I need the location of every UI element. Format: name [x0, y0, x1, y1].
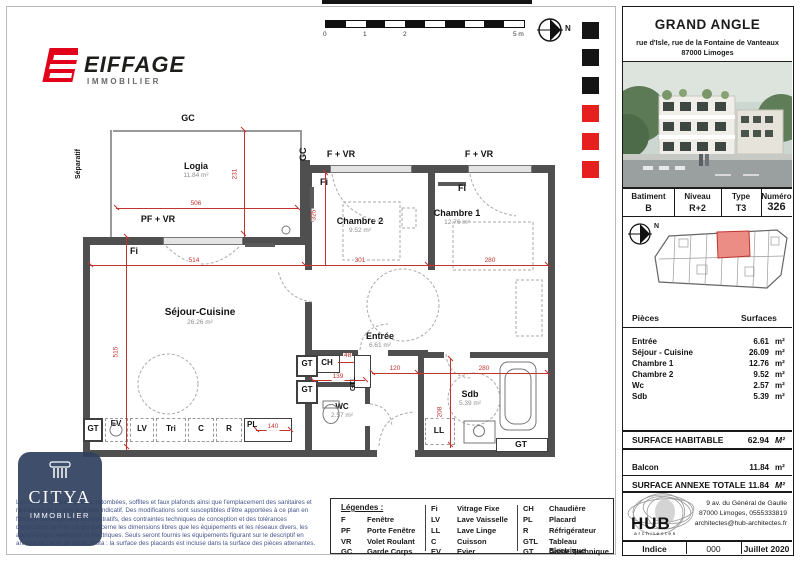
scale-seg [405, 21, 425, 27]
surface-row-label: Entrée [632, 337, 657, 346]
dim-280-top: 280 [484, 258, 497, 265]
dim-140: 140 [267, 424, 280, 431]
surface-row-label: Chambre 1 [632, 359, 673, 368]
hub-address-3: architectes@hub-architectes.fr [683, 520, 787, 527]
legend-title: Légendes : [341, 503, 383, 512]
hub-address-1: 9 av. du Général de Gaulle [683, 500, 787, 507]
unit-header-batiment: Batiment [623, 192, 674, 201]
dim-line [116, 208, 298, 209]
marker-square-black [582, 49, 599, 66]
legend-abbr: LV [431, 515, 440, 524]
legend-label: Lave Linge [457, 526, 496, 535]
legend-abbr: C [431, 537, 436, 546]
legend-abbr: F [341, 515, 346, 524]
surface-habitable-value: 62.94 [735, 435, 769, 445]
legend-divider [425, 505, 426, 551]
scale-seg [385, 21, 405, 27]
compass-icon [536, 15, 568, 47]
surface-row-label: Wc [632, 381, 644, 390]
brand-name: EIFFAGE [84, 52, 185, 78]
table-border [623, 448, 792, 450]
marker-square-black [582, 22, 599, 39]
legend-abbr: R [523, 526, 528, 535]
dim-280-sdb: 280 [478, 366, 491, 373]
hub-sub: architectes [634, 532, 677, 537]
dim-515: 515 [114, 346, 121, 359]
unit-value-niveau: R+2 [674, 203, 721, 213]
dim-325: 325 [312, 209, 319, 222]
scale-seg [425, 21, 445, 27]
indice-value: 000 [686, 544, 741, 554]
balcon-value: 11.84 [735, 463, 769, 472]
legend-abbr: CH [523, 504, 534, 513]
scale-tick-1: 1 [363, 31, 367, 38]
dim-506: 506 [190, 201, 203, 208]
surface-row-unit: m² [775, 381, 785, 390]
plan-linework [58, 112, 560, 474]
hub-address-2: 87000 Limoges, 0555333819 [683, 510, 787, 517]
legend-abbr: VR [341, 537, 351, 546]
marker-square-black [582, 77, 599, 94]
indice-label: Indice [623, 544, 686, 554]
scale-seg [484, 21, 504, 27]
project-address-2: 87000 Limoges [623, 48, 792, 57]
legend-label: Garde Corps [367, 547, 412, 556]
brand-division: IMMOBILIER [87, 77, 161, 86]
unit-header-numero: Numéro [761, 192, 792, 201]
table-border [623, 430, 792, 432]
legend-label: Réfrigérateur [549, 526, 596, 535]
surface-annexe-unit: M² [775, 480, 785, 490]
unit-header-type: Type [721, 192, 761, 201]
key-plan: N [623, 217, 792, 303]
dim-301: 301 [354, 258, 367, 265]
marker-square-red [582, 161, 599, 178]
north-compass: N [536, 15, 568, 52]
scale-seg [504, 21, 524, 27]
marker-square-red [582, 105, 599, 122]
eiffage-icon [34, 46, 78, 88]
dim-line [244, 130, 245, 237]
project-address-1: rue d'Isle, rue de la Fontaine de Vantea… [623, 38, 792, 47]
dim-line [126, 237, 127, 450]
dim-line [90, 265, 548, 266]
dim-139: 139 [332, 374, 345, 381]
surface-row-value: 9.52 [735, 370, 769, 379]
column-icon [47, 460, 73, 480]
marker-square-red [582, 133, 599, 150]
dim-line [372, 373, 548, 374]
citya-name: CITYA [18, 487, 102, 508]
surface-row-label: Sdb [632, 392, 647, 401]
surface-row-unit: m² [775, 370, 785, 379]
dim-514: 514 [188, 258, 201, 265]
surface-row-value: 2.57 [735, 381, 769, 390]
legend-label: Evier [457, 547, 475, 556]
top-rule [322, 0, 532, 4]
scale-tick-0: 0 [323, 31, 327, 38]
key-plan-sketch [651, 223, 789, 301]
table-border [623, 188, 792, 189]
surface-annexe-label: SURFACE ANNEXE TOTALE [632, 480, 746, 490]
unit-value-batiment: B [623, 203, 674, 213]
table-border [623, 327, 792, 328]
surfaces-head-surfaces: Surfaces [741, 313, 777, 323]
legend-label: Fenêtre [367, 515, 394, 524]
surface-habitable-label: SURFACE HABITABLE [632, 435, 723, 445]
legend-abbr: EV [431, 547, 441, 556]
legend-label: Cuisson [457, 537, 487, 546]
balcon-label: Balcon [632, 463, 659, 472]
surface-row-value: 5.39 [735, 392, 769, 401]
legend-label: Volet Roulant [367, 537, 415, 546]
floor-plan: GC Séparatif Logia 11.84 m² 506 PF + VR … [58, 112, 560, 474]
surface-row-value: 26.09 [735, 348, 769, 357]
dim-231: 231 [233, 168, 240, 181]
surface-row-unit: m² [775, 348, 785, 357]
dim-48: 48 [343, 353, 352, 360]
legend-label: Gaine Technique [549, 547, 609, 556]
scale-seg [346, 21, 366, 27]
north-letter: N [565, 24, 571, 33]
citya-logo: CITYA IMMOBILIER [18, 452, 102, 546]
citya-sub: IMMOBILIER [18, 511, 102, 520]
dim-line [450, 359, 451, 448]
surface-row-unit: m² [775, 359, 785, 368]
unit-value-numero: 326 [761, 201, 792, 213]
scale-seg [465, 21, 485, 27]
legend-abbr: PL [523, 515, 533, 524]
project-title: GRAND ANGLE [623, 17, 792, 32]
plan-sheet: EIFFAGE IMMOBILIER 0 1 2 5 m N [0, 0, 800, 562]
surface-habitable-unit: M² [775, 435, 785, 445]
table-border [623, 540, 792, 542]
surface-row-label: Séjour - Cuisine [632, 348, 693, 357]
legend-label: Porte Fenêtre [367, 526, 415, 535]
scale-seg [445, 21, 465, 27]
scale-seg [366, 21, 386, 27]
scale-bar [325, 20, 525, 28]
legend-label: Vitrage Fixe [457, 504, 499, 513]
table-border [623, 475, 792, 476]
dim-120: 120 [389, 366, 402, 373]
legend-abbr: LL [431, 526, 440, 535]
legend-abbr: GTL [523, 537, 538, 546]
scale-seg [326, 21, 346, 27]
balcon-unit: m² [775, 463, 785, 472]
scale-tick-5m: 5 m [513, 31, 524, 38]
surfaces-head-pieces: Pièces [632, 313, 659, 323]
legend-label: Chaudière [549, 504, 586, 513]
unit-value-type: T3 [721, 203, 761, 213]
side-panel: GRAND ANGLE rue d'Isle, rue de la Fontai… [622, 6, 794, 556]
legend-abbr: GT [523, 547, 533, 556]
revision-date: Juillet 2020 [741, 544, 792, 554]
legend-abbr: PF [341, 526, 351, 535]
legend-abbr: Fi [431, 504, 438, 513]
legend-abbr: GC [341, 547, 352, 556]
legend-label: Lave Vaisselle [457, 515, 508, 524]
dim-line [325, 173, 326, 265]
legend-label: Placard [549, 515, 576, 524]
surface-row-unit: m² [775, 392, 785, 401]
legend-box: Légendes : F Fenêtre PF Porte Fenêtre VR… [330, 498, 614, 554]
surface-row-value: 12.76 [735, 359, 769, 368]
hub-name: HUB [631, 514, 671, 534]
dim-line [338, 362, 354, 363]
legend-divider [517, 505, 518, 551]
surface-row-value: 6.61 [735, 337, 769, 346]
surface-annexe-value: 11.84 [735, 480, 769, 490]
surface-row-label: Chambre 2 [632, 370, 673, 379]
unit-header-niveau: Niveau [674, 192, 721, 201]
building-render-image [623, 61, 792, 188]
scale-tick-2: 2 [403, 31, 407, 38]
surface-row-unit: m² [775, 337, 785, 346]
dim-208: 208 [438, 406, 445, 419]
